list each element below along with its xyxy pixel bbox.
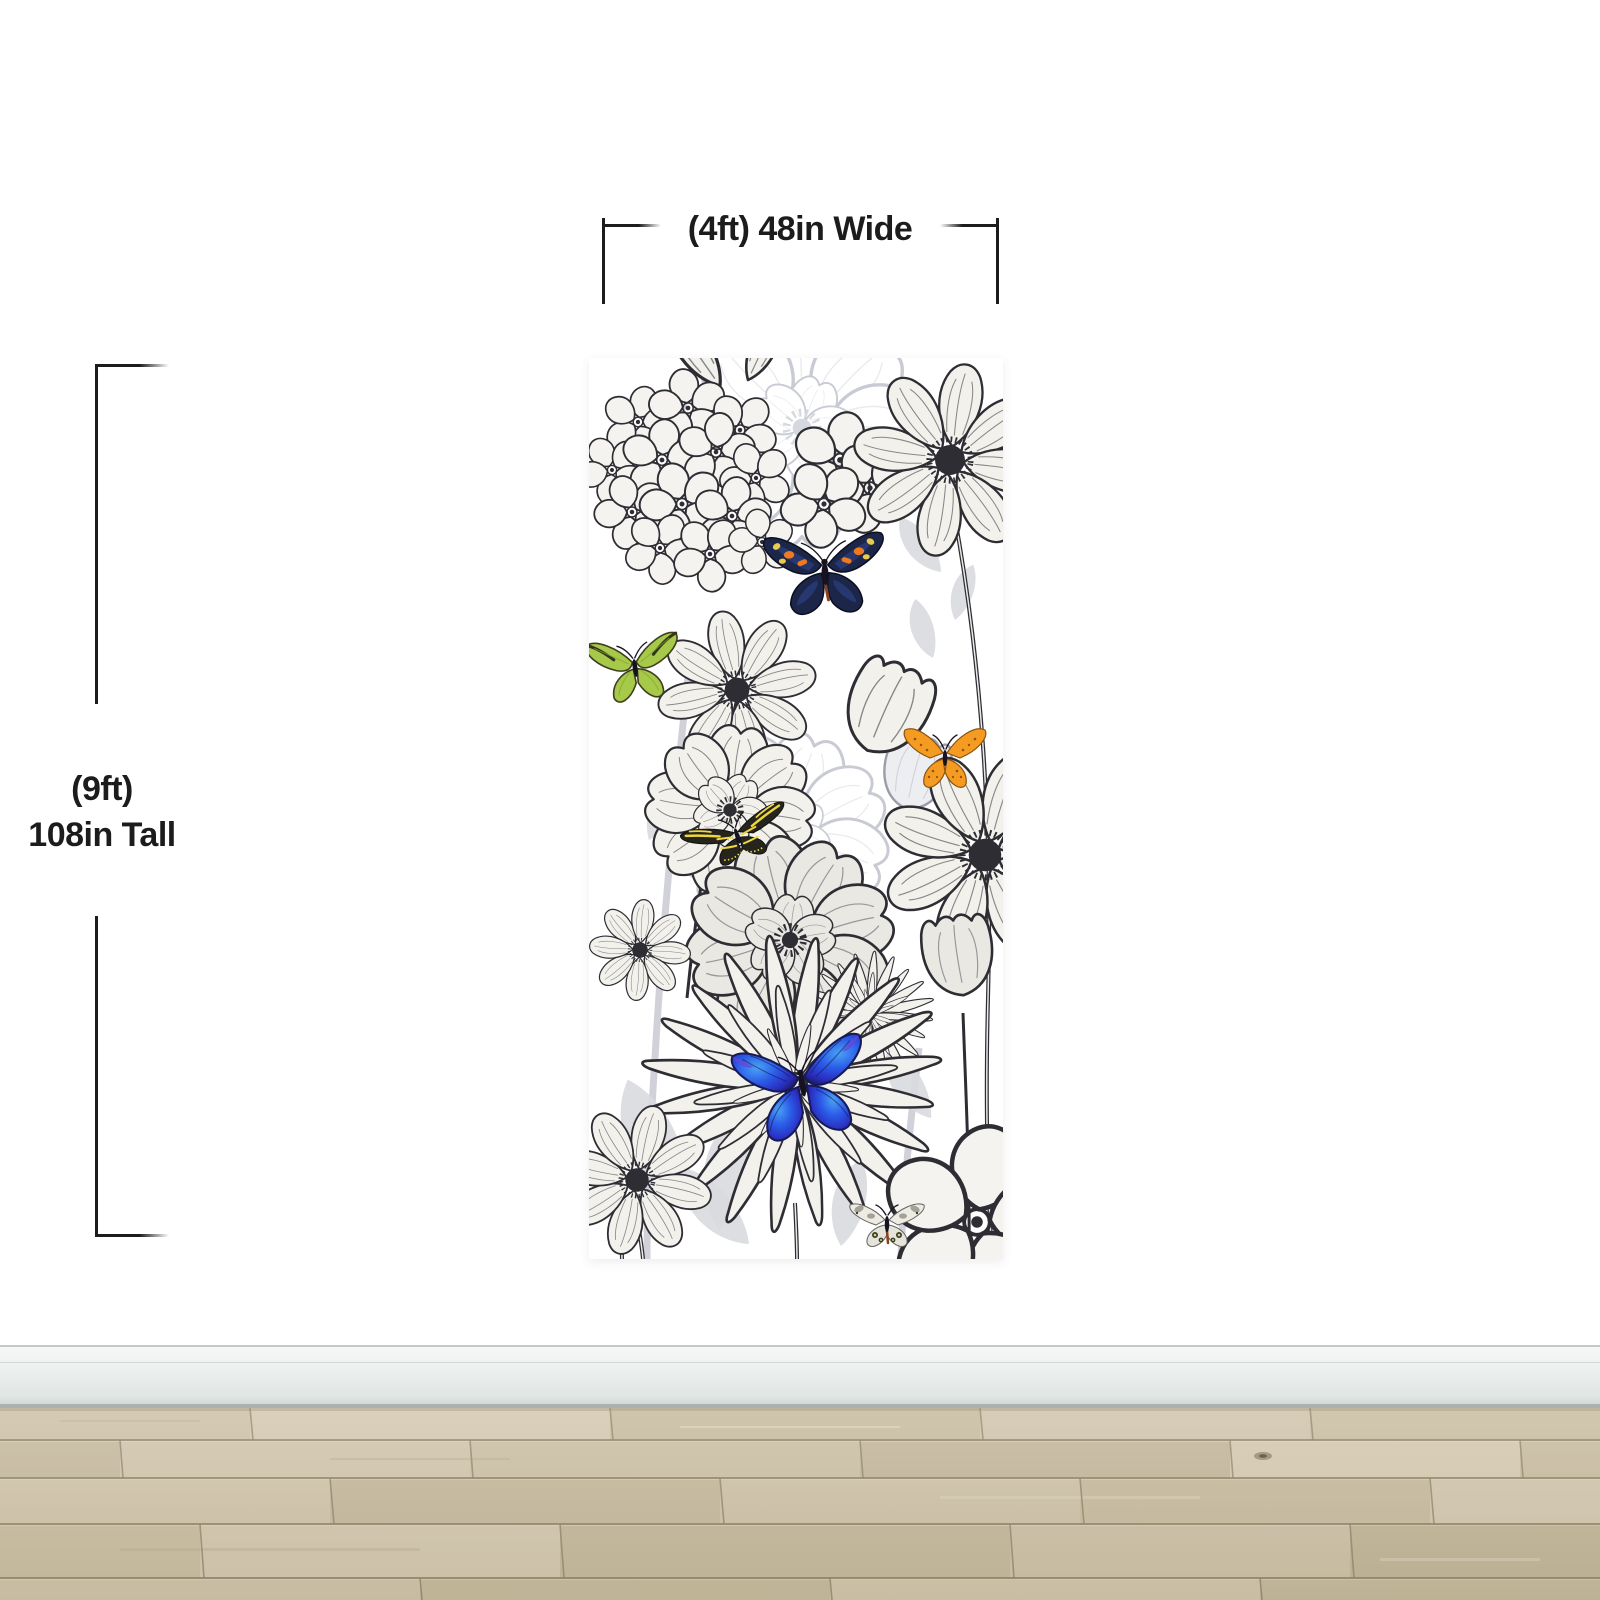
wallpaper-mural-panel: [589, 358, 1003, 1259]
height-line-upper: [95, 364, 98, 704]
height-label-line1: (9ft): [0, 766, 204, 812]
height-label: (9ft) 108in Tall: [0, 766, 204, 858]
product-mockup-scene: (4ft) 48in Wide (9ft) 108in Tall: [0, 0, 1600, 1600]
mural-illustration: [589, 358, 1003, 1259]
flower-tulip-dark: [918, 911, 998, 1000]
height-label-line2: 108in Tall: [0, 812, 204, 858]
width-bracket-right-tick: [940, 224, 996, 227]
width-bracket-left-line: [602, 218, 605, 304]
floor-planks: [0, 1408, 1600, 1600]
width-bracket-right-line: [996, 218, 999, 304]
height-tick-bottom: [95, 1234, 169, 1237]
wood-floor: [0, 1408, 1600, 1600]
height-line-lower: [95, 916, 98, 1237]
baseboard: [0, 1345, 1600, 1408]
height-tick-top: [95, 364, 169, 367]
width-label: (4ft) 48in Wide: [620, 206, 980, 252]
